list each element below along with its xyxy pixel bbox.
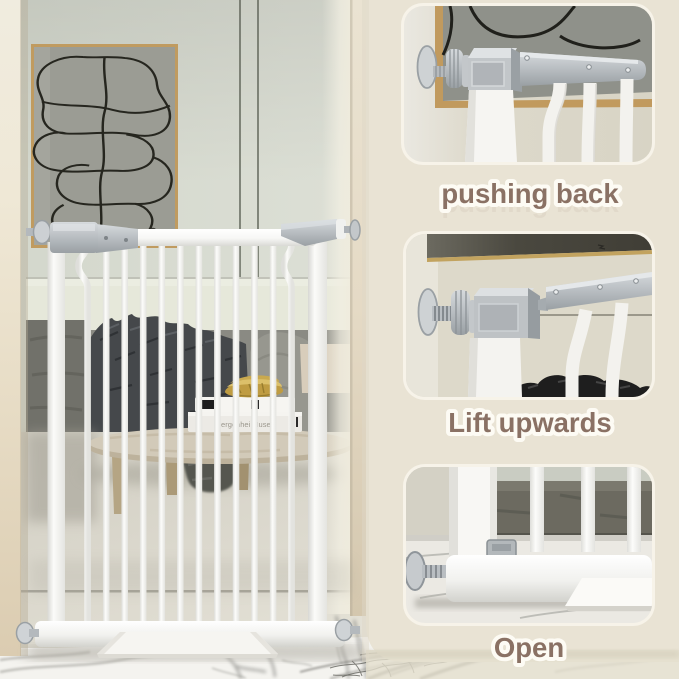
svg-text:pushing back: pushing back xyxy=(441,178,619,209)
svg-text:Gergenhei Musen: Gergenhei Musen xyxy=(215,420,275,429)
svg-text:Lift upwards: Lift upwards xyxy=(448,407,611,438)
svg-text:Open: Open xyxy=(494,632,564,663)
